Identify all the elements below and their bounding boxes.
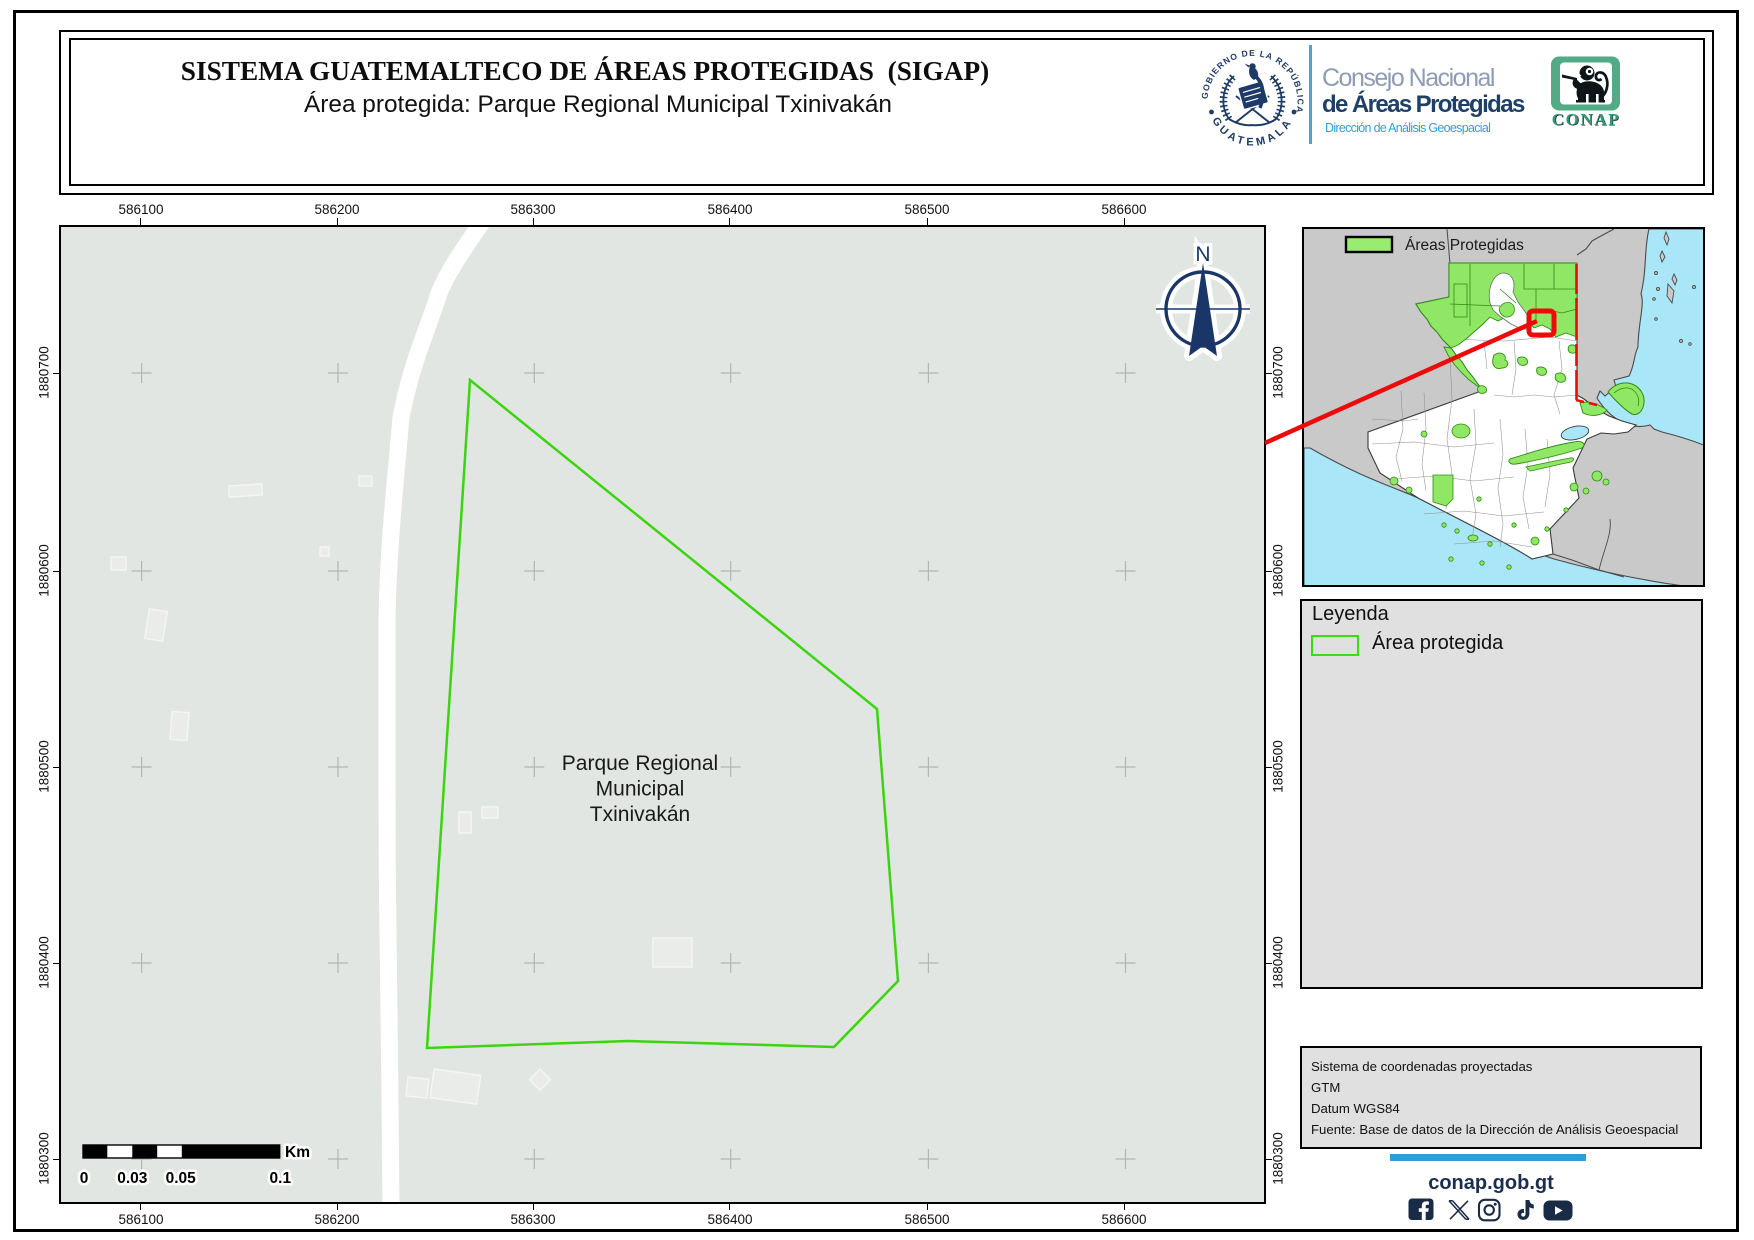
- svg-text:GUATEMALA: GUATEMALA: [1209, 115, 1295, 148]
- svg-text:N: N: [1195, 243, 1210, 266]
- svg-text:Km: Km: [285, 1144, 310, 1161]
- svg-text:Txinivakán: Txinivakán: [590, 803, 690, 826]
- svg-text:Parque Regional: Parque Regional: [562, 752, 718, 775]
- svg-text:0.05: 0.05: [166, 1170, 197, 1187]
- svg-text:0: 0: [80, 1170, 89, 1187]
- svg-text:Municipal: Municipal: [596, 778, 685, 801]
- svg-text:Áreas Protegidas: Áreas Protegidas: [1405, 237, 1524, 254]
- svg-text:0.03: 0.03: [117, 1170, 148, 1187]
- svg-text:CONAP: CONAP: [1552, 110, 1620, 128]
- svg-text:0.1: 0.1: [270, 1170, 292, 1187]
